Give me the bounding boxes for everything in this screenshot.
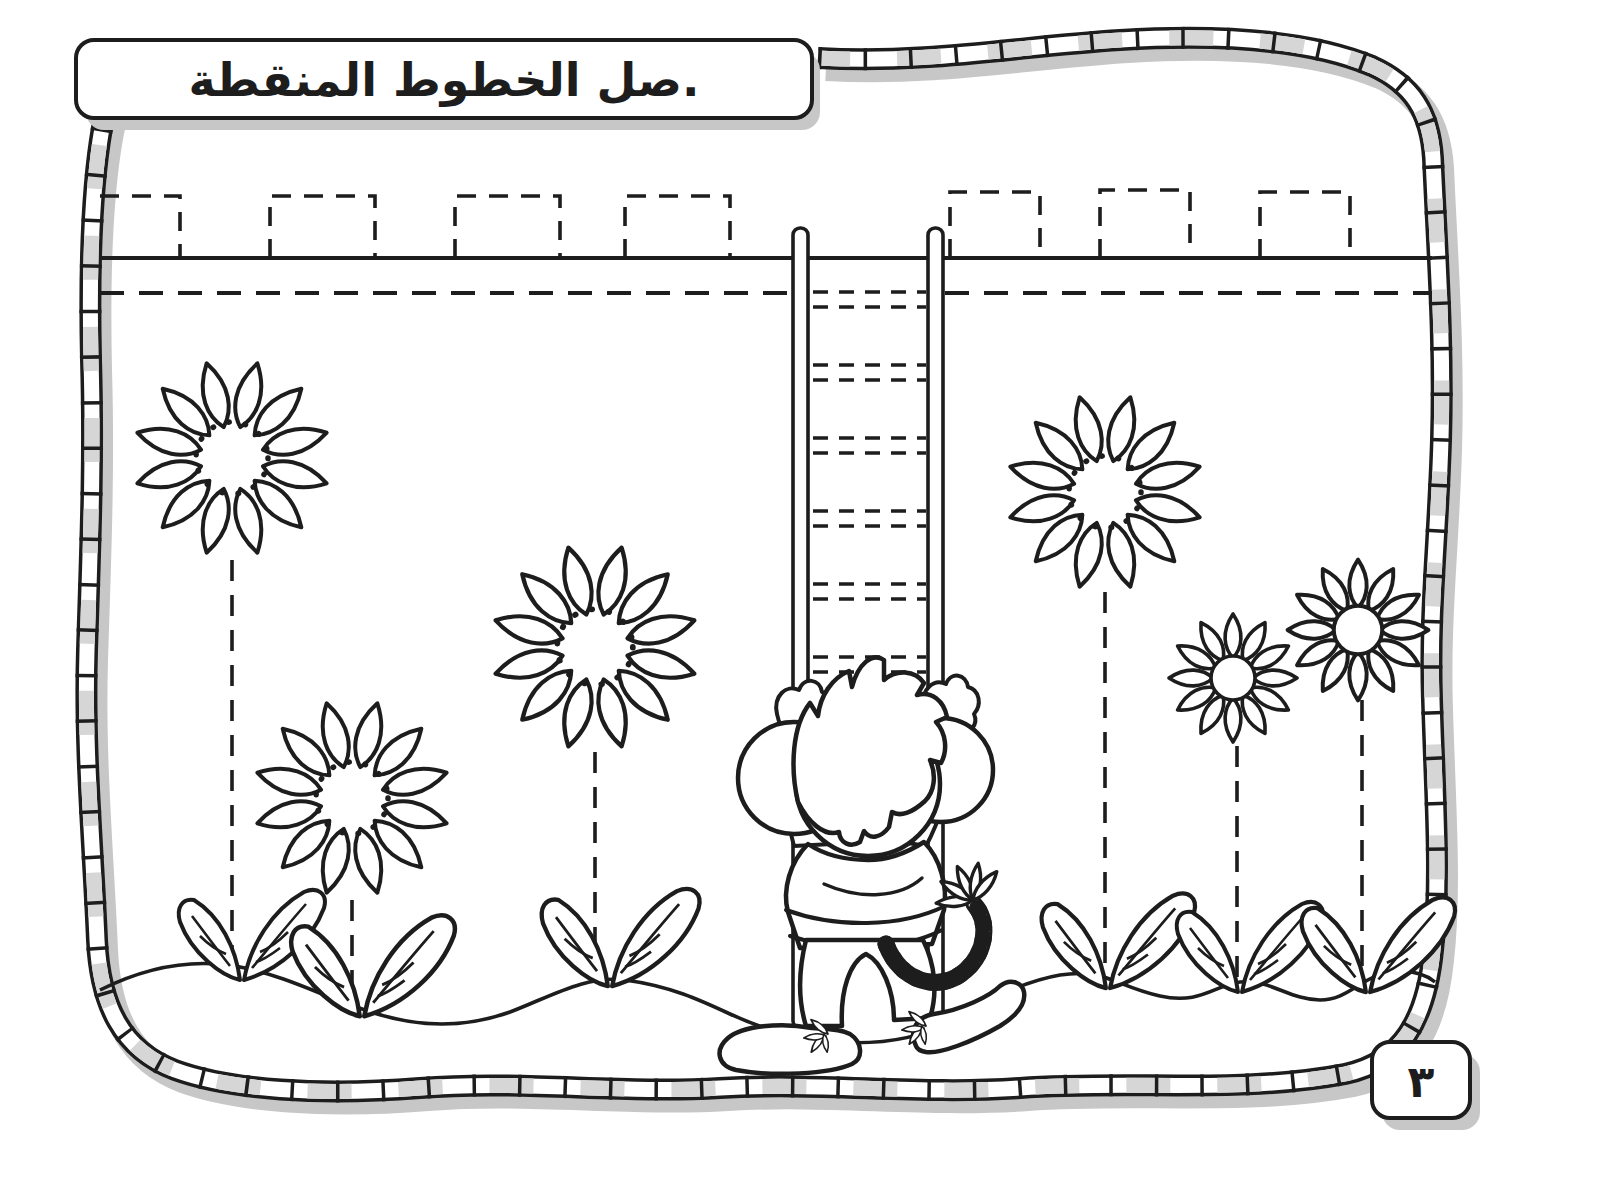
worksheet-illustration: صل الخطوط المنقطة. ٣ [0,0,1600,1200]
worksheet-page: صل الخطوط المنقطة. ٣ [0,0,1600,1200]
flower-large-3 [492,544,697,749]
page-number-text: ٣ [1408,1056,1435,1107]
flower-small-1 [1169,614,1297,742]
battlement-dashes [100,190,1350,258]
mouse-character [720,658,1025,1074]
shoe-left [720,1025,860,1074]
title-box: صل الخطوط المنقطة. [76,40,820,130]
tail-tuft [936,863,1001,908]
flower-small-2 [1288,560,1429,701]
instruction-text: صل الخطوط المنقطة. [188,53,699,107]
page-number-box: ٣ [1372,1042,1480,1130]
leaf-cluster-3 [542,889,700,986]
castle-wall [100,190,1432,293]
ladder-rung-dashes [813,292,926,672]
flower-large-4 [1007,394,1202,589]
flower-large-1 [134,360,329,555]
leaf-cluster-2 [291,915,455,1016]
flower-large-2 [254,700,449,895]
